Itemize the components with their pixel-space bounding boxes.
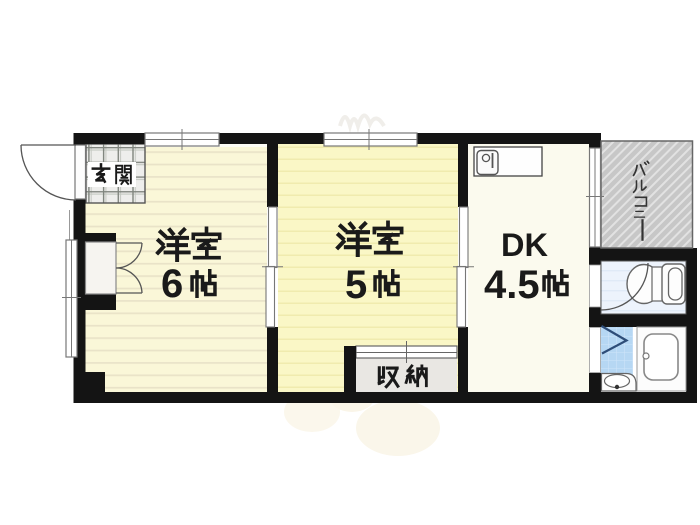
svg-text:6: 6 xyxy=(161,262,183,306)
svg-text:4.5: 4.5 xyxy=(484,263,540,307)
svg-text:5: 5 xyxy=(345,263,367,307)
svg-text:DK: DK xyxy=(501,227,548,263)
